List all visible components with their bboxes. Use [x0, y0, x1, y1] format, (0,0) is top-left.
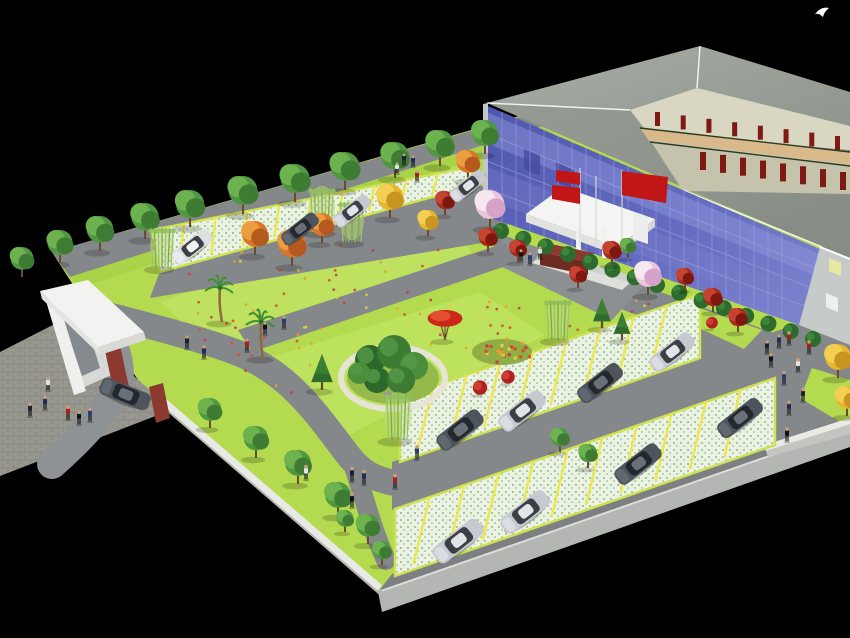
flying-bird-icon [815, 8, 829, 17]
site-rendering-stage [0, 0, 850, 638]
architectural-rendering [0, 0, 850, 638]
bird-icon [815, 8, 829, 17]
